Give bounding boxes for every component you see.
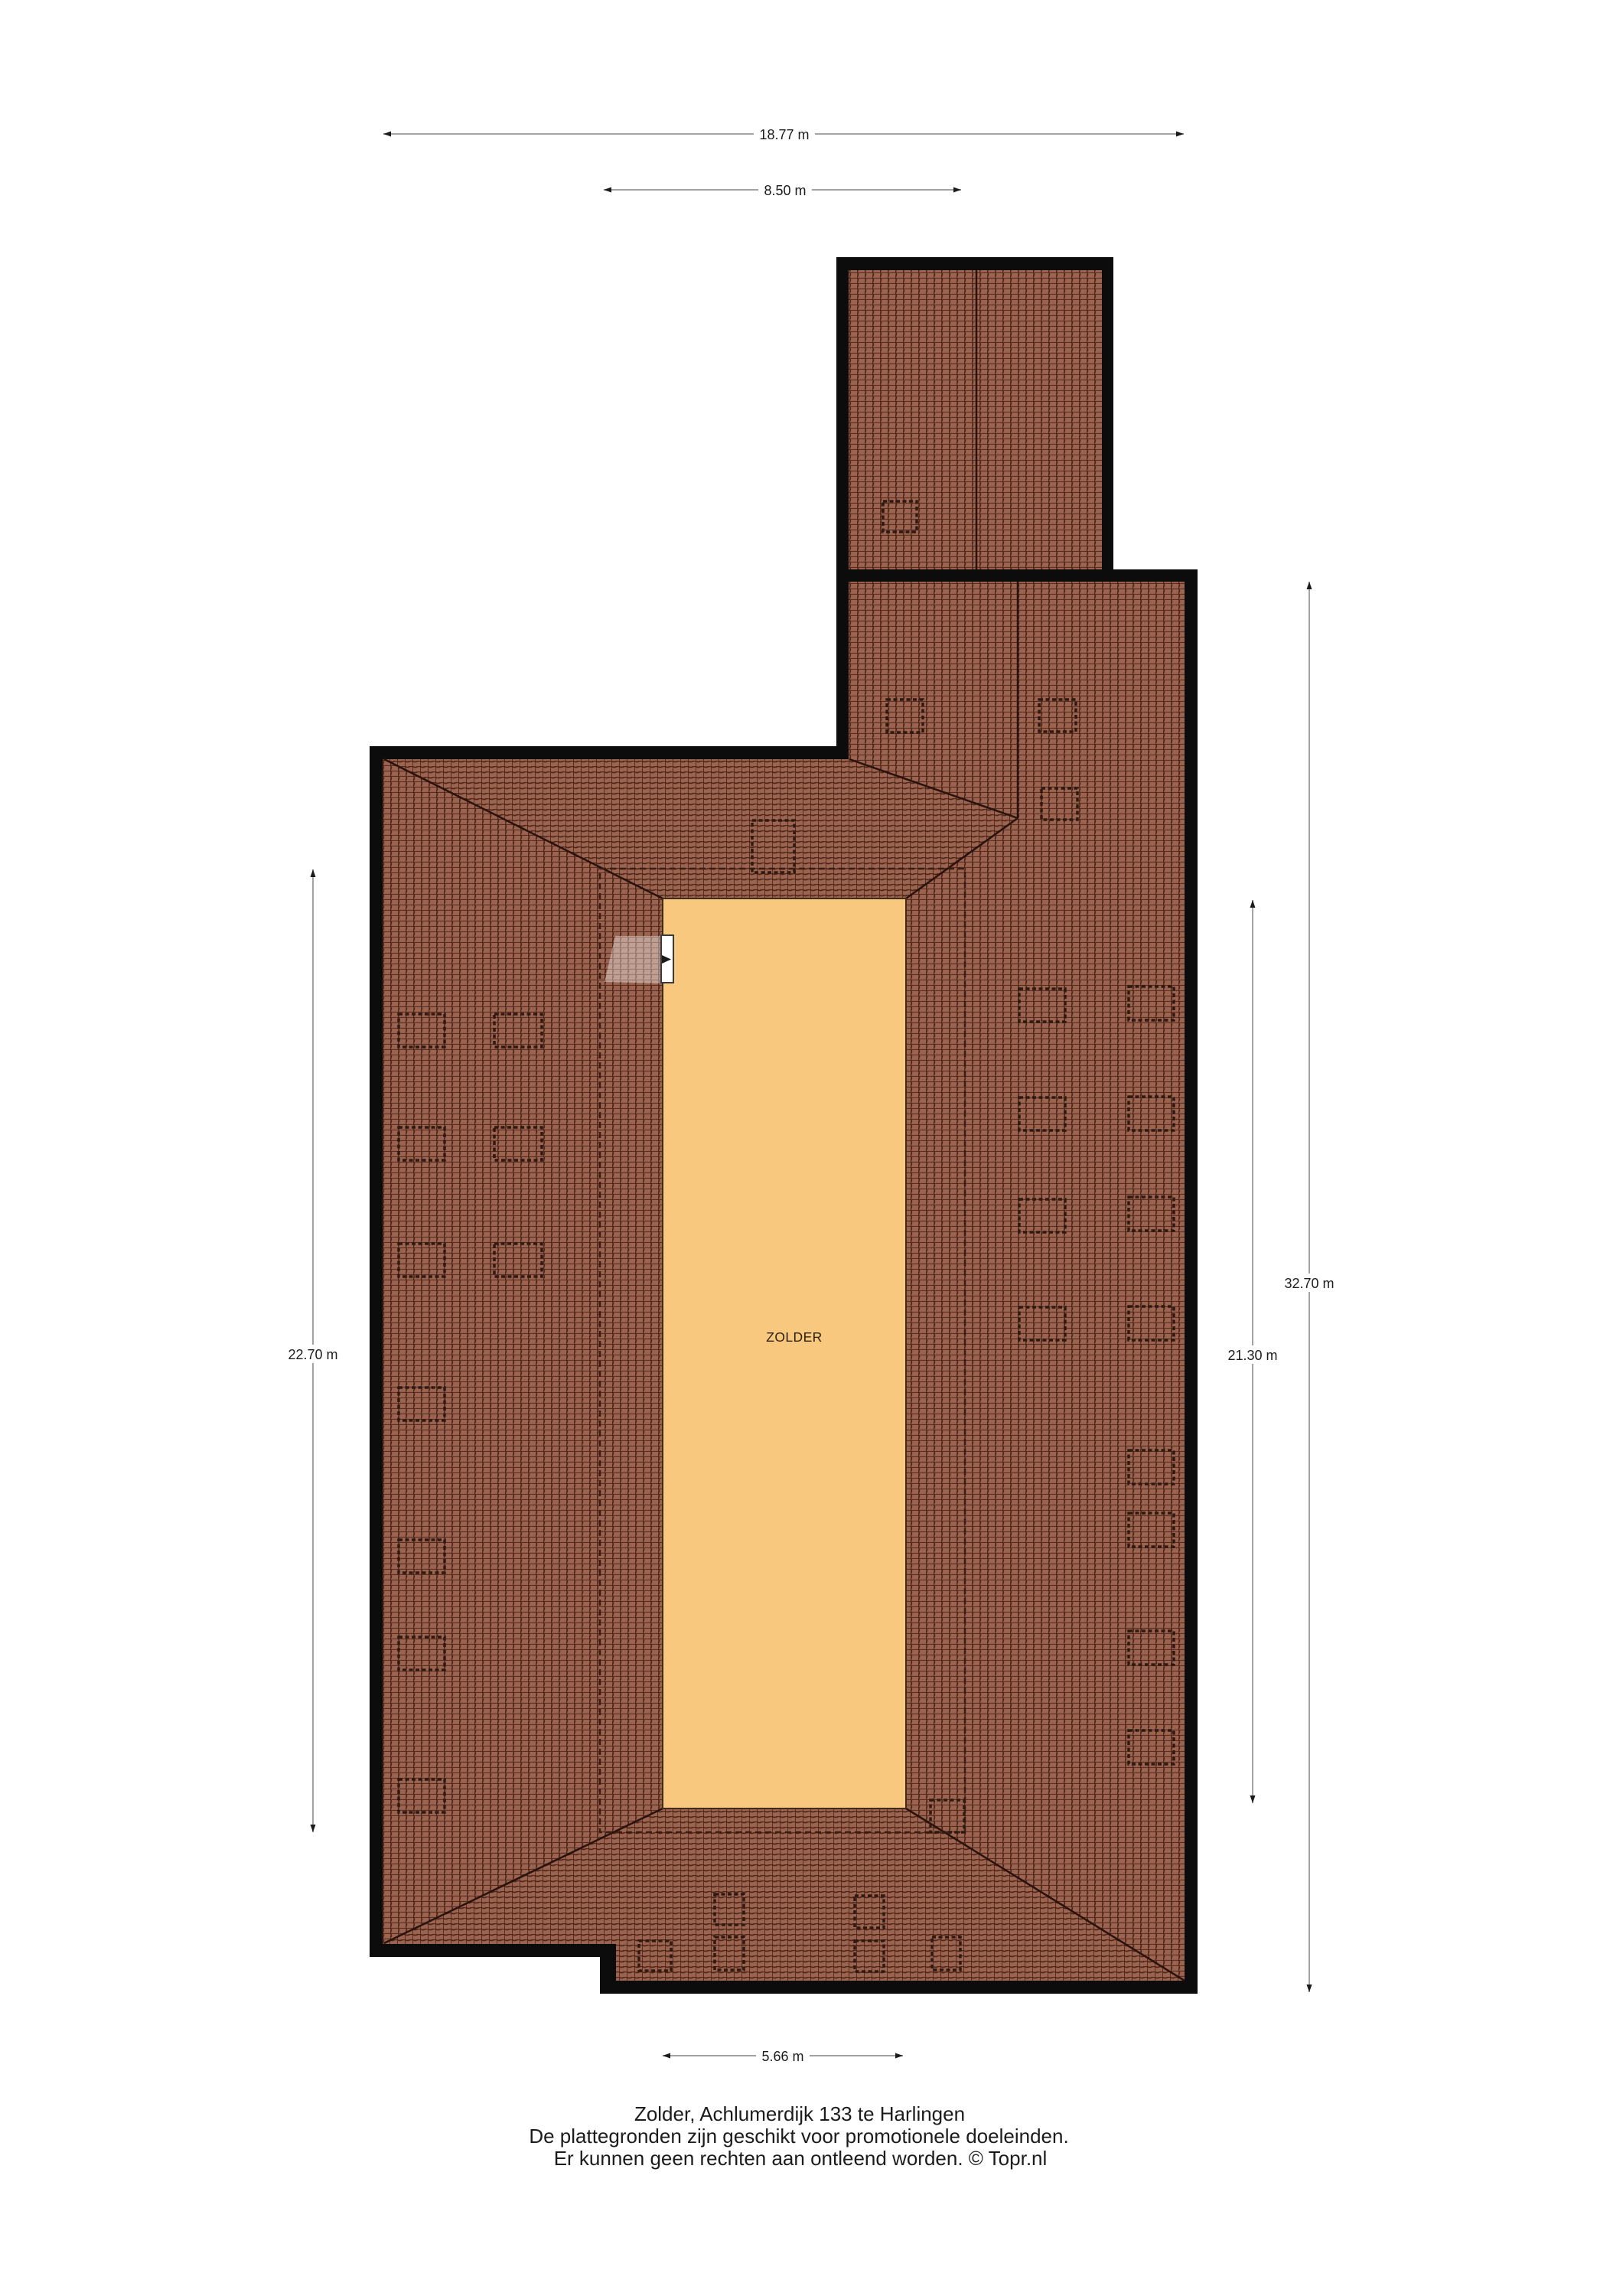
svg-text:18.77 m: 18.77 m — [759, 127, 809, 142]
svg-text:Er kunnen geen rechten aan ont: Er kunnen geen rechten aan ontleend word… — [554, 2147, 1048, 2170]
svg-text:8.50 m: 8.50 m — [764, 183, 806, 198]
svg-text:De plattegronden zijn geschikt: De plattegronden zijn geschikt voor prom… — [529, 2125, 1068, 2148]
svg-text:22.70 m: 22.70 m — [288, 1347, 337, 1362]
svg-text:32.70 m: 32.70 m — [1284, 1276, 1334, 1291]
svg-text:ZOLDER: ZOLDER — [766, 1329, 822, 1345]
svg-text:5.66 m: 5.66 m — [761, 2049, 803, 2064]
svg-text:Zolder, Achlumerdijk 133 te Ha: Zolder, Achlumerdijk 133 te Harlingen — [634, 2102, 965, 2125]
svg-text:21.30 m: 21.30 m — [1227, 1348, 1277, 1363]
